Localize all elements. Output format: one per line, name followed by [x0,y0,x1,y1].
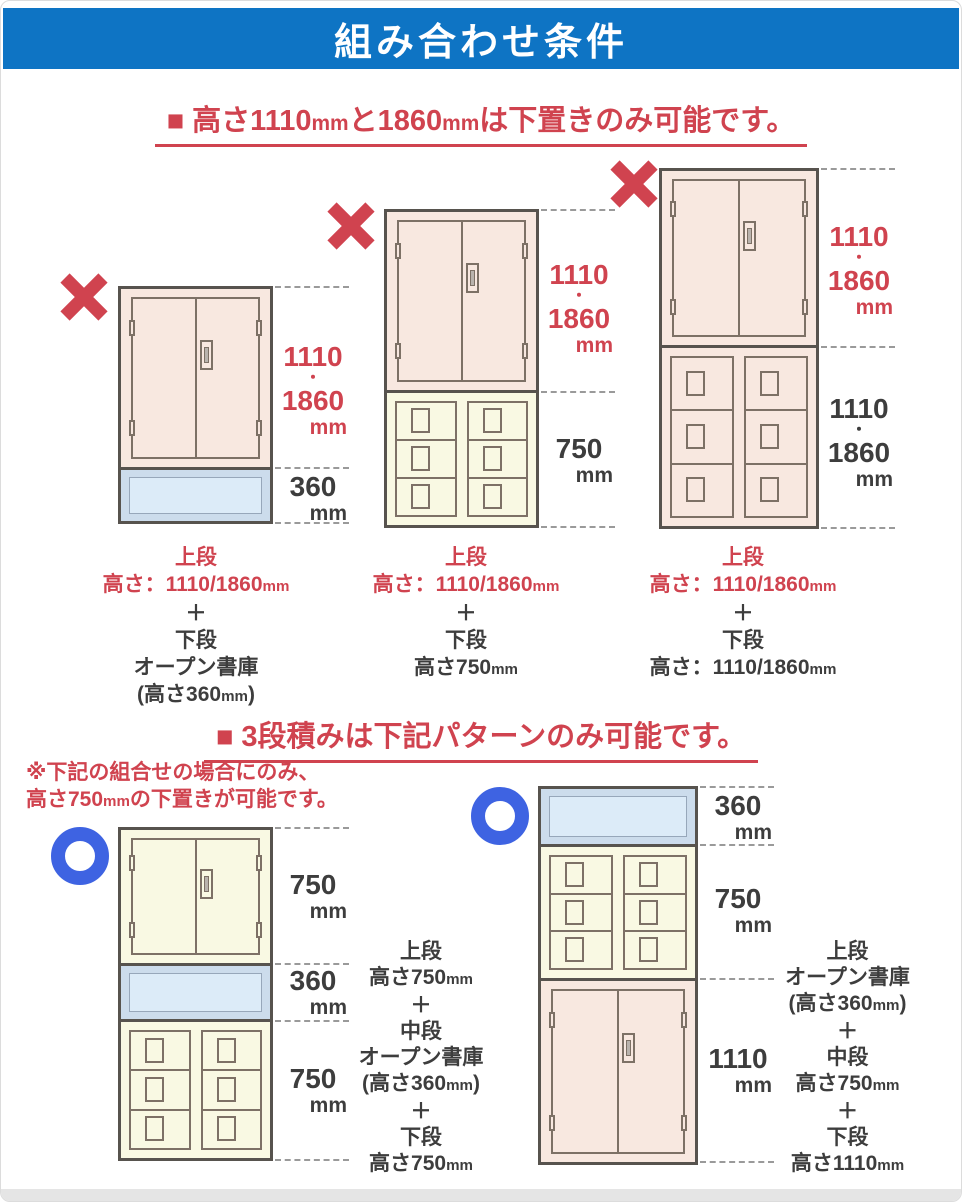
caption-line: ＋ [71,600,321,627]
caption-line: 下段 [618,627,868,654]
caption-line: 高さ1110mm [755,1151,940,1179]
section2-heading: ■ 3段積みは下記パターンのみ可能です。 [1,713,961,763]
caption-line: 中段 [755,1045,940,1071]
caption-line: (高さ360mm) [755,991,940,1019]
dim-label-lower: 1110・1860mm [823,393,895,491]
caption-line: 高さ：1110/1860mm [351,571,581,600]
open-shelf-unit [538,786,698,847]
caption-line: ＋ [331,1099,511,1125]
caption-line: 高さ750mm [351,654,581,683]
caption-line: ＋ [331,993,511,1019]
dim-extension-line [275,827,349,829]
cabinet-doors-short [118,827,273,966]
ok-circle-icon [51,827,109,885]
dim-label-upper: 1110・1860mm [823,221,895,319]
ok-circle-icon [471,787,529,845]
caption-line: 上段 [71,544,321,571]
open-shelf-unit [118,963,273,1022]
caption-line: 上段 [618,544,868,571]
section2-heading-text: ■ 3段積みは下記パターンのみ可能です。 [204,713,758,763]
dim-extension-line [700,844,774,846]
dim-extension-line [541,209,615,211]
cabinet-doors-tall [538,978,698,1165]
caption-line: ＋ [351,600,581,627]
dim-extension-line [821,527,895,529]
dim-label-top: 750mm [277,869,349,923]
diagram3-caption: 上段高さ：1110/1860mm＋下段高さ：1110/1860mm [618,544,868,683]
cabinet-doors-tall [118,286,273,470]
dim-extension-line [541,391,615,393]
dim-extension-line [541,526,615,528]
drawer-unit [118,1019,273,1161]
dim-label-middle: 750mm [702,883,774,937]
cabinet-stack-2 [384,209,539,528]
caption-line: 下段 [755,1125,940,1151]
page: 組み合わせ条件 ■ 高さ1110mmと1860mmは下置きのみ可能です。 111… [0,0,962,1202]
ng-cross-icon [56,269,112,325]
page-title-bar: 組み合わせ条件 [3,8,959,69]
caption-line: (高さ360mm) [71,681,321,710]
cabinet-stack-4 [118,827,273,1161]
dim-label-upper: 1110・1860mm [543,259,615,357]
caption-line: 高さ750mm [331,1151,511,1179]
note: ※下記の組合せの場合にのみ、 高さ750mmの下置きが可能です。 [26,759,338,815]
caption-line: 高さ750mm [755,1071,940,1099]
diagram4-caption: 上段高さ750mm＋中段オープン書庫(高さ360mm)＋下段高さ750mm [331,939,511,1179]
cabinet-stack-5 [538,786,698,1165]
section1-heading: ■ 高さ1110mmと1860mmは下置きのみ可能です。 [1,97,961,147]
cabinet-stack-3 [659,168,819,529]
caption-line: ＋ [755,1019,940,1045]
dim-extension-line [700,786,774,788]
caption-line: 高さ750mm [331,965,511,993]
cabinet-doors-tall [659,168,819,348]
page-title: 組み合わせ条件 [334,11,628,66]
note-line-2: 高さ750mmの下置きが可能です。 [26,786,338,815]
open-shelf-unit [118,467,273,524]
caption-line: 高さ：1110/1860mm [618,654,868,683]
caption-line: オープン書庫 [755,965,940,991]
caption-line: 高さ：1110/1860mm [618,571,868,600]
caption-line: 上段 [351,544,581,571]
dim-extension-line [275,286,349,288]
drawer-unit [538,844,698,981]
caption-line: 上段 [331,939,511,965]
dim-label-top: 360mm [702,790,774,844]
caption-line: ＋ [755,1099,940,1125]
caption-line: 上段 [755,939,940,965]
cabinet-stack-1 [118,286,273,524]
caption-line: ＋ [618,600,868,627]
diagram1-caption: 上段高さ：1110/1860mm＋下段オープン書庫(高さ360mm) [71,544,321,710]
ng-cross-icon [323,198,379,254]
diagram5-caption: 上段オープン書庫(高さ360mm)＋中段高さ750mm＋下段高さ1110mm [755,939,940,1179]
caption-line: オープン書庫 [331,1045,511,1071]
dim-extension-line [821,346,895,348]
dim-extension-line [275,467,349,469]
section1-heading-text: ■ 高さ1110mmと1860mmは下置きのみ可能です。 [155,97,808,147]
dim-label-lower: 360mm [277,471,349,525]
caption-line: (高さ360mm) [331,1071,511,1099]
caption-line: 下段 [351,627,581,654]
drawer-unit [384,390,539,528]
caption-line: 下段 [331,1125,511,1151]
cabinet-doors-tall [384,209,539,393]
note-line-1: ※下記の組合せの場合にのみ、 [26,759,338,786]
dim-label-lower: 750mm [543,433,615,487]
caption-line: 下段 [71,627,321,654]
caption-line: 中段 [331,1019,511,1045]
dim-extension-line [821,168,895,170]
dim-label-upper: 1110・1860mm [277,341,349,439]
drawer-unit [659,345,819,529]
footer-strip [1,1189,961,1201]
caption-line: 高さ：1110/1860mm [71,571,321,600]
diagram2-caption: 上段高さ：1110/1860mm＋下段高さ750mm [351,544,581,683]
caption-line: オープン書庫 [71,654,321,681]
ng-cross-icon [606,156,662,212]
